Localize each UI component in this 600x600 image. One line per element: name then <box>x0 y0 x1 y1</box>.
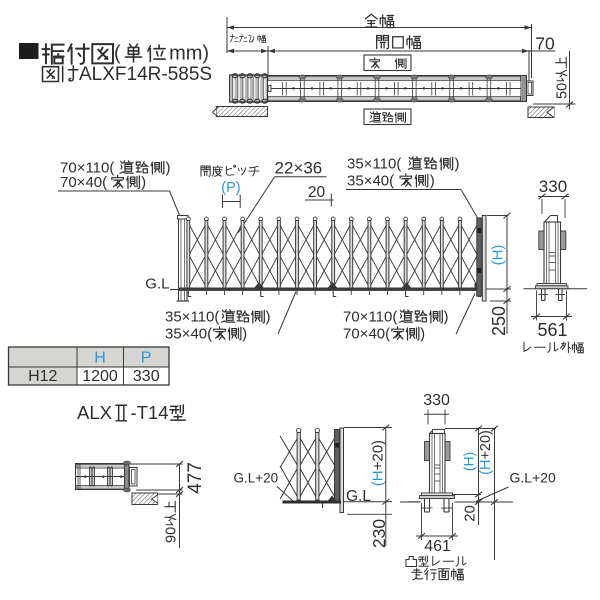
svg-text:H: H <box>94 350 106 367</box>
svg-text:): ) <box>420 326 425 343</box>
svg-text:70×40(: 70×40( <box>343 326 390 343</box>
svg-text:70: 70 <box>535 34 555 54</box>
svg-text:230: 230 <box>369 519 389 548</box>
svg-text:): ) <box>266 309 271 326</box>
svg-text:ALXF14R-585S: ALXF14R-585S <box>79 64 212 85</box>
svg-text:-T14: -T14 <box>131 402 169 423</box>
svg-text:G.L: G.L <box>145 276 169 293</box>
svg-text:90: 90 <box>164 527 180 543</box>
svg-text:P: P <box>141 350 152 367</box>
svg-text:(: ( <box>114 43 121 65</box>
svg-text:22×36: 22×36 <box>275 159 323 178</box>
svg-text:G.L+20: G.L+20 <box>234 471 279 486</box>
svg-text:330: 330 <box>423 392 450 409</box>
svg-text:35×40(: 35×40( <box>165 326 212 343</box>
svg-text:35×40(: 35×40( <box>347 173 394 190</box>
svg-text:20: 20 <box>462 505 479 522</box>
svg-text:330: 330 <box>539 177 567 196</box>
svg-text:G.L+20: G.L+20 <box>510 470 557 486</box>
svg-text:): ) <box>430 173 435 190</box>
svg-text:(H: (H <box>478 460 494 475</box>
svg-text:(H: (H <box>370 470 387 486</box>
svg-text:477: 477 <box>185 462 206 494</box>
svg-text:(H): (H) <box>461 452 477 471</box>
svg-text:ALX: ALX <box>77 402 112 423</box>
svg-text:50: 50 <box>555 83 571 99</box>
svg-text:250: 250 <box>489 306 509 336</box>
svg-text:1200: 1200 <box>82 368 118 385</box>
svg-text:20: 20 <box>308 184 326 201</box>
svg-text:): ) <box>444 309 449 326</box>
svg-text:): ) <box>455 156 460 173</box>
svg-text:): ) <box>166 160 171 177</box>
svg-text:+20): +20) <box>370 440 387 470</box>
svg-text:): ) <box>141 174 146 191</box>
svg-text:35×110(: 35×110( <box>347 156 401 173</box>
svg-text:70×110(: 70×110( <box>343 309 397 326</box>
svg-text:): ) <box>242 326 247 343</box>
svg-text:mm): mm) <box>169 43 209 65</box>
svg-text:H12: H12 <box>28 368 57 385</box>
svg-text:(H): (H) <box>490 245 507 266</box>
svg-text:(P): (P) <box>221 180 240 196</box>
svg-text:70×40(: 70×40( <box>60 174 107 191</box>
svg-text:561: 561 <box>538 320 568 340</box>
svg-text:461: 461 <box>424 538 451 555</box>
svg-text:35×110(: 35×110( <box>165 309 219 326</box>
svg-text:+20): +20) <box>478 430 494 459</box>
svg-text:330: 330 <box>133 368 160 385</box>
svg-text:G.L: G.L <box>346 488 371 505</box>
